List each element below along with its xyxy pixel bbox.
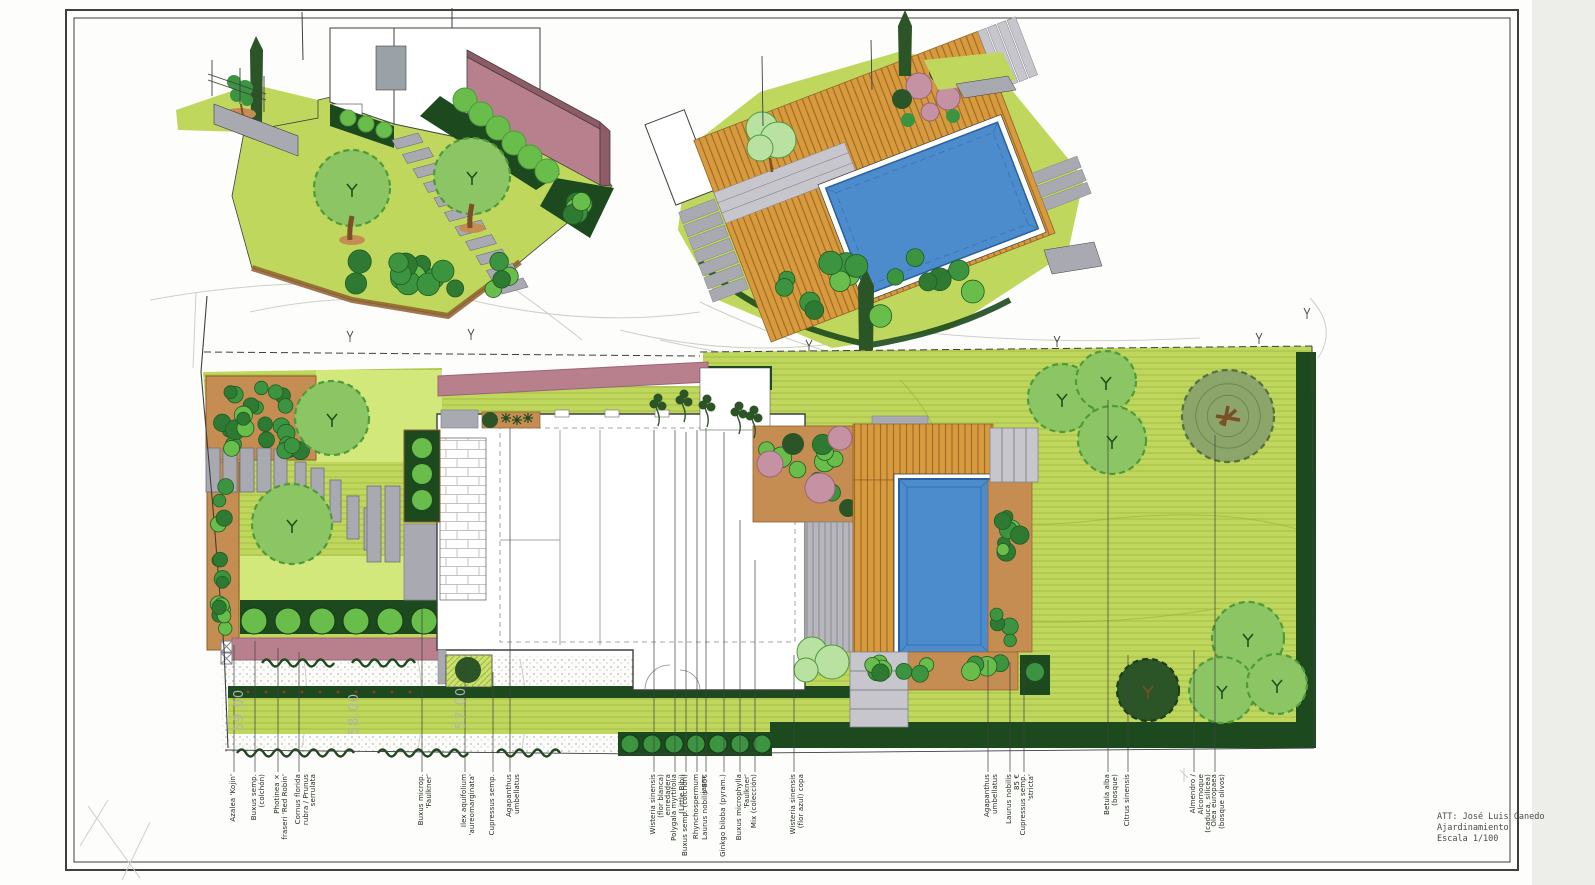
plant-label: Wisteria sinensis (flor azul) copa	[790, 774, 805, 860]
below-house-lawn-texture	[228, 698, 858, 734]
plant-label: Betula alba (bosque)	[1104, 774, 1119, 860]
plant-label: Ginkgo biloba (pyram.)	[720, 774, 728, 860]
shrub	[340, 110, 356, 126]
olive-tree	[1182, 370, 1274, 462]
plant-label: Buxus microphylla 'Faulkner'	[736, 774, 751, 860]
shrub	[218, 622, 232, 636]
contour-label: 59.00	[232, 689, 247, 731]
shrub	[377, 608, 403, 634]
shrub	[994, 513, 1011, 530]
flower-dot	[373, 691, 376, 694]
shrub	[872, 664, 889, 681]
plant-label: Azalea 'Kojin'	[230, 774, 238, 860]
cypress-icon	[250, 36, 263, 122]
flower-dot	[391, 691, 394, 694]
trunk	[470, 204, 472, 228]
drawing-svg: 59.0058.0057.00	[0, 0, 1595, 885]
pool	[894, 474, 994, 658]
stepping-stone	[240, 448, 254, 492]
wood-deck-top	[853, 424, 993, 480]
foliage	[684, 398, 693, 407]
perspective-sketch-right	[645, 0, 1102, 356]
survey-tick	[1304, 308, 1310, 319]
shrub	[869, 305, 892, 328]
plant-label: Buxus microp. 'Faulkner'	[418, 774, 433, 860]
foliage	[676, 396, 685, 405]
shrub	[258, 417, 273, 432]
perspective-sketch-left	[176, 8, 614, 316]
shrub	[962, 662, 981, 681]
plant-label: Agapanthus umbellatus	[984, 774, 999, 860]
shrub	[268, 385, 282, 399]
flower-dot	[301, 691, 304, 694]
shrub	[643, 735, 661, 753]
shrub	[572, 192, 590, 210]
shrub	[990, 608, 1003, 621]
survey-tick	[1054, 336, 1060, 347]
plant-label: Photinea × fraseri 'Red Robin'	[274, 774, 289, 860]
plant-label: Buxus semp. (colchón)	[682, 774, 690, 860]
flower-dot	[283, 691, 286, 694]
shrub	[912, 665, 929, 682]
shrub	[224, 440, 240, 456]
shrub	[819, 251, 843, 275]
foliage	[658, 402, 667, 411]
plant-label: Agapanthus umbellatus	[506, 774, 521, 860]
survey-tick	[347, 331, 353, 342]
brick-terrace	[440, 438, 486, 600]
agapanthus-icon	[512, 415, 522, 425]
wood-deck-side	[853, 480, 899, 652]
canopy	[1117, 659, 1179, 721]
foliage	[699, 401, 708, 410]
shrub	[237, 412, 250, 425]
garden-plan-sheet: 59.0058.0057.00 Azalea 'Kojin'Buxus semp…	[0, 0, 1595, 885]
shrub	[949, 260, 969, 280]
shrub	[906, 249, 924, 267]
scan-edge	[1532, 0, 1595, 885]
shrub	[805, 301, 824, 320]
flower-dot	[337, 691, 340, 694]
plant-label: Buxus semp. (colchón)	[251, 774, 266, 860]
plant-label: Laurus nobilis 85€	[702, 774, 710, 860]
stepping-stone	[367, 486, 381, 562]
agapanthus-icon	[501, 413, 511, 423]
shrub	[1004, 634, 1017, 647]
attribution-line: ATT: José Luis Canedo	[1437, 812, 1544, 823]
shrub	[997, 543, 1009, 555]
shrub	[896, 663, 912, 679]
shrub	[241, 608, 267, 634]
light-tree	[252, 484, 332, 564]
shrub	[255, 381, 269, 395]
canopy	[1247, 654, 1307, 714]
trunk	[350, 216, 352, 240]
flower-dot	[265, 691, 268, 694]
door	[376, 46, 406, 90]
canopy	[1076, 351, 1136, 411]
foliage	[754, 414, 763, 423]
shrub	[389, 253, 408, 272]
foliage	[746, 412, 755, 421]
plant-label: Cupressus semp. 'stricta'	[1020, 774, 1035, 860]
light-tree	[1078, 406, 1146, 474]
shrub	[224, 386, 237, 399]
flower-dot	[247, 691, 250, 694]
shrub	[412, 438, 432, 458]
shrub	[789, 461, 806, 478]
plant-label: Olea europaea (bosque olivos)	[1211, 774, 1226, 860]
shrub	[343, 608, 369, 634]
foliage	[650, 400, 659, 409]
cypress-icon	[455, 657, 481, 683]
plant-label: Mix (colección)	[751, 774, 759, 860]
canopy	[252, 484, 332, 564]
entrance-landing	[441, 410, 478, 428]
canopy	[295, 381, 369, 455]
shrub	[887, 269, 904, 286]
flower-dot	[319, 691, 322, 694]
plant-label: Citrus sinensis	[1124, 774, 1132, 860]
shrub	[845, 254, 868, 277]
shrub	[213, 494, 226, 507]
shrub	[412, 490, 432, 510]
foliage	[707, 403, 716, 412]
shrub	[358, 116, 374, 132]
stepping-stone	[385, 486, 400, 562]
shrub	[432, 260, 454, 282]
shrub	[535, 159, 559, 183]
grey-deck-strip	[805, 522, 853, 652]
light-tree	[1247, 654, 1307, 714]
light-tree	[1189, 657, 1255, 723]
shrub	[309, 608, 335, 634]
shrub	[216, 510, 232, 526]
canopy	[1189, 657, 1255, 723]
flower-dot	[409, 691, 412, 694]
canopy	[1078, 406, 1146, 474]
plant-label: Ilex aquifolium 'aureomarginata'	[461, 774, 476, 860]
sketch-tree	[314, 150, 390, 226]
shrub	[665, 735, 683, 753]
dark-tree	[1117, 659, 1179, 721]
light-tree	[295, 381, 369, 455]
shrub	[490, 252, 509, 271]
shrub	[621, 735, 639, 753]
shrub	[278, 399, 293, 414]
shrub	[961, 280, 984, 303]
light-tree	[1076, 351, 1136, 411]
house-footprint	[437, 414, 805, 690]
boundary-wall-left	[232, 638, 440, 660]
contour-label: 57.00	[454, 687, 469, 729]
shrub	[411, 608, 437, 634]
cypress-icon	[898, 10, 912, 76]
shrub	[753, 735, 771, 753]
shrub	[348, 250, 371, 273]
shrub	[216, 576, 228, 588]
shrub	[275, 608, 301, 634]
shrub	[1011, 526, 1029, 544]
shrub	[919, 273, 937, 291]
attribution-line: Ajardinamiento	[1437, 823, 1544, 834]
title-block: ATT: José Luis Canedo Ajardinamiento Esc…	[1437, 812, 1544, 845]
canopy	[314, 150, 390, 226]
shrub	[493, 271, 511, 289]
plant-label: Cornus florida rubra / Prunus serrulata	[295, 774, 318, 860]
canopy	[434, 138, 510, 214]
sketch-tree	[434, 138, 510, 214]
clipped-shrub	[482, 412, 498, 428]
site-plan	[201, 296, 1316, 757]
survey-tick	[1256, 333, 1262, 344]
lawn-steps-right	[990, 428, 1038, 482]
shrub	[412, 464, 432, 484]
foliage	[731, 408, 740, 417]
contour-label: 58.00	[347, 693, 362, 735]
shrub	[345, 273, 366, 294]
shrub	[259, 432, 275, 448]
shrub	[775, 279, 793, 297]
attribution-line: Escala 1/100	[1437, 834, 1544, 845]
shrub	[376, 122, 392, 138]
shrub	[284, 438, 300, 454]
survey-tick	[468, 329, 474, 340]
shrub	[218, 479, 234, 495]
stone-landing	[404, 524, 438, 600]
stepping-stone	[257, 448, 271, 492]
shrub	[213, 552, 228, 567]
stepping-stone	[347, 496, 359, 539]
shrub	[687, 735, 705, 753]
shrub	[212, 600, 226, 614]
plant-label: Cupressus semp.	[489, 774, 497, 860]
agapanthus-icon	[523, 413, 533, 423]
drain-boxes	[221, 641, 232, 664]
shrub	[447, 280, 464, 297]
